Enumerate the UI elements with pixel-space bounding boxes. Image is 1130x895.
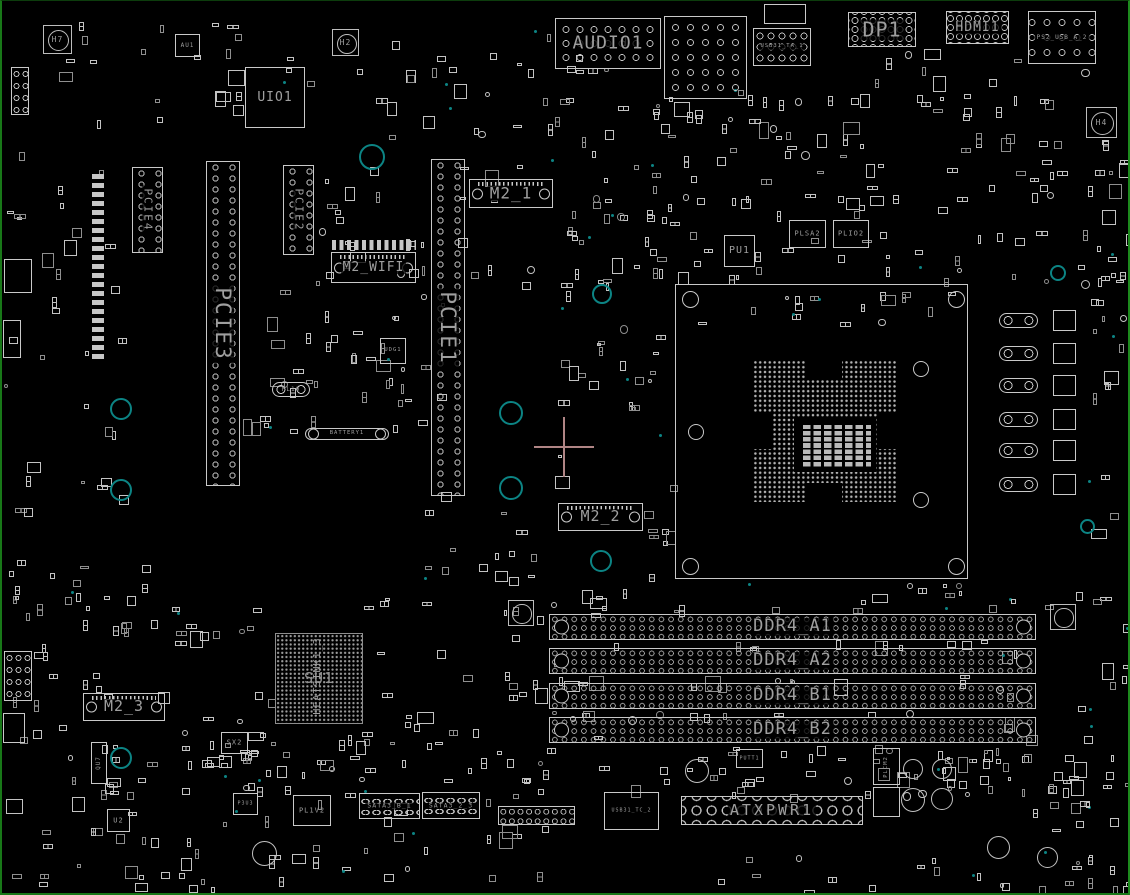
ddr4-a2-slot: DDR4_A2 — [549, 648, 1036, 674]
smd-part — [364, 606, 373, 611]
vrm-powerstage-1 — [1053, 310, 1076, 331]
smd-part — [1093, 329, 1097, 335]
plcm-chip-2 — [873, 787, 900, 817]
smd-part — [933, 76, 947, 92]
smd-part — [216, 92, 231, 102]
ddr4-a2-slot-label: DDR4_A2 — [751, 652, 834, 670]
smd-part — [947, 168, 958, 174]
left-conn-1 — [4, 259, 32, 293]
pcie3-slot-label: PCIE3 — [212, 284, 234, 363]
smd-part — [449, 107, 452, 110]
smd-part — [838, 758, 846, 762]
vrm-inductor-5 — [999, 443, 1038, 458]
smd-part — [1111, 755, 1114, 762]
smd-part — [652, 173, 661, 178]
smd-part — [1039, 886, 1046, 894]
smd-part — [917, 865, 925, 869]
smd-part — [377, 652, 386, 655]
smd-part — [996, 748, 1000, 757]
smd-part — [756, 777, 765, 782]
smd-part — [42, 644, 46, 653]
smd-part — [509, 551, 515, 557]
smd-part — [866, 164, 875, 178]
smd-part — [759, 122, 769, 139]
smd-part — [1012, 274, 1017, 280]
smd-part — [151, 620, 159, 629]
smd-part — [656, 104, 660, 108]
smd-part — [76, 593, 81, 603]
smd-part — [1126, 627, 1129, 630]
smd-part — [449, 67, 457, 74]
smd-part — [1123, 665, 1130, 669]
smd-part — [176, 631, 188, 637]
smd-part — [269, 426, 272, 429]
smd-part — [454, 84, 467, 99]
smd-part — [141, 49, 146, 55]
smd-part — [233, 105, 244, 116]
smd-part — [248, 732, 264, 741]
plio2-chip-label: PLIO2 — [836, 230, 866, 237]
smd-part — [933, 109, 943, 113]
smd-part — [1080, 801, 1089, 807]
smd-part — [223, 822, 226, 826]
smd-part — [867, 186, 879, 190]
smd-part — [287, 57, 294, 61]
smd-part — [989, 185, 995, 191]
smd-part — [313, 845, 320, 853]
smd-part — [314, 381, 318, 387]
smd-part — [331, 335, 339, 343]
smd-part — [785, 151, 791, 160]
smd-part — [634, 265, 640, 269]
smd-part — [1116, 280, 1125, 284]
smd-part — [350, 756, 359, 760]
smd-part — [512, 635, 520, 642]
smd-part — [934, 867, 940, 876]
smd-part — [513, 125, 522, 129]
smd-part — [118, 338, 128, 343]
smd-part — [382, 693, 393, 697]
smd-part — [473, 729, 478, 738]
battery1-label: BATTERY1 — [328, 431, 367, 437]
smd-part — [490, 53, 498, 60]
smd-part — [336, 217, 344, 224]
cap-7 — [252, 841, 277, 866]
smd-part — [463, 675, 473, 682]
smd-part — [509, 695, 518, 701]
qu7-chip: QU7 — [91, 742, 107, 784]
smd-part — [50, 573, 56, 579]
smd-part — [302, 772, 305, 779]
smd-part — [947, 641, 956, 647]
smd-part — [551, 602, 557, 608]
socket-center-caps — [803, 425, 871, 468]
smd-part — [932, 858, 935, 864]
smd-part — [481, 758, 487, 769]
smd-part — [495, 553, 498, 560]
smd-part — [182, 746, 190, 751]
smd-part — [292, 854, 306, 864]
smd-part — [957, 197, 968, 202]
smd-part — [878, 164, 884, 169]
vrm-inductor-2 — [999, 346, 1038, 361]
smd-part — [907, 583, 913, 589]
smd-part — [528, 69, 535, 78]
smd-part — [91, 828, 96, 837]
smd-part — [190, 631, 202, 648]
smd-part — [83, 620, 88, 631]
smd-part — [64, 240, 78, 256]
smd-part — [983, 759, 990, 768]
smd-part — [572, 211, 576, 219]
smd-part — [1039, 141, 1048, 147]
pl10-inductor-label: PL10 — [280, 386, 302, 392]
smd-part — [981, 640, 988, 644]
smd-part — [1113, 886, 1118, 895]
smd-part — [422, 266, 425, 276]
m2-3-slot-label: M2_3 — [102, 699, 146, 715]
ddr4-a1-slot: DDR4_A1 — [549, 614, 1036, 640]
smd-part — [362, 392, 367, 403]
au1-chip-label: AU1 — [179, 42, 197, 48]
smd-part — [7, 211, 14, 214]
smd-part — [524, 779, 530, 785]
smd-part — [861, 600, 866, 605]
smd-part — [319, 228, 326, 235]
smd-part — [1089, 855, 1093, 858]
smd-part — [68, 755, 74, 761]
cpu-pin-field — [753, 360, 896, 502]
smd-part — [362, 732, 373, 737]
smd-part — [561, 307, 564, 310]
smd-part — [27, 462, 41, 474]
smd-part — [558, 400, 570, 405]
smd-part — [687, 112, 693, 124]
smd-part — [271, 742, 275, 746]
smd-part — [432, 68, 436, 78]
smd-part — [139, 875, 144, 880]
smd-part — [538, 761, 543, 766]
smd-part — [26, 476, 31, 487]
smd-part — [1044, 279, 1049, 284]
smd-part — [618, 106, 629, 111]
smd-part — [326, 342, 331, 352]
smd-part — [105, 244, 115, 249]
smd-part — [756, 267, 763, 275]
smd-part — [151, 838, 159, 848]
smd-part — [366, 357, 376, 361]
qu7-chip-label: QU7 — [94, 756, 104, 770]
smd-part — [267, 317, 277, 332]
smd-part — [509, 577, 519, 586]
smd-part — [488, 265, 492, 276]
smd-part — [961, 148, 972, 153]
smd-part — [345, 793, 356, 798]
smd-part — [471, 272, 479, 279]
plsa2-chip: PLSA2 — [789, 220, 826, 248]
left-padcol — [92, 174, 104, 359]
smd-part — [1095, 170, 1105, 176]
smd-part — [1105, 383, 1109, 390]
ddr4-a1-slot-label: DDR4_A1 — [751, 618, 834, 636]
smd-part — [327, 204, 338, 209]
smd-part — [886, 58, 891, 69]
usb31-ta-cage — [764, 4, 806, 24]
smd-part — [111, 286, 120, 294]
smd-part — [1119, 344, 1124, 354]
vrm-powerstage-5 — [1053, 440, 1076, 461]
battery1: BATTERY1 — [305, 428, 389, 440]
p3u3-chip-label: P3U3 — [235, 801, 255, 806]
teal-ring-5 — [499, 476, 523, 500]
m2-wifi-padrow — [332, 240, 416, 250]
smd-part — [1090, 725, 1093, 728]
usb-stack-connector — [664, 16, 747, 99]
smd-part — [528, 575, 535, 579]
smd-part — [977, 873, 981, 881]
smd-part — [516, 530, 528, 535]
smd-part — [418, 420, 428, 426]
cpu-socket — [675, 284, 968, 579]
smd-part — [1110, 866, 1115, 875]
mounting-hole-h2: H2 — [332, 29, 359, 56]
mounting-hole-h2-label: H2 — [338, 38, 354, 46]
smd-part — [49, 674, 58, 679]
smd-part — [1119, 163, 1130, 179]
smd-part — [1103, 141, 1108, 151]
smd-part — [423, 116, 435, 129]
ddr4-b1-slot: DDR4_B1 — [549, 683, 1036, 709]
smd-part — [684, 156, 689, 168]
smd-part — [854, 211, 860, 219]
smd-part — [19, 152, 25, 161]
smd-part — [401, 384, 405, 394]
smd-part — [1093, 599, 1102, 605]
smd-part — [1081, 280, 1090, 289]
smd-part — [915, 250, 923, 255]
smd-part — [1047, 192, 1054, 199]
plio2-chip: PLIO2 — [833, 220, 869, 248]
smd-part — [1076, 821, 1084, 828]
smd-part — [617, 213, 624, 220]
smd-part — [755, 252, 761, 262]
smd-part — [142, 837, 146, 845]
smd-part — [697, 198, 705, 205]
smd-part — [704, 249, 713, 253]
smd-part — [479, 564, 489, 572]
smd-part — [870, 196, 884, 205]
smd-part — [1078, 706, 1086, 712]
smd-part — [943, 584, 947, 587]
smd-part — [843, 122, 860, 135]
smd-part — [838, 255, 845, 264]
smd-part — [73, 580, 81, 587]
smd-part — [72, 228, 81, 238]
smd-part — [668, 204, 672, 212]
smd-part — [728, 117, 733, 122]
smd-part — [398, 400, 403, 407]
smd-part — [653, 268, 658, 279]
smd-part — [547, 34, 551, 42]
teal-ring-6 — [592, 284, 612, 304]
smd-part — [1089, 708, 1092, 711]
smd-part — [37, 604, 43, 616]
smd-part — [421, 365, 431, 369]
smd-part — [567, 231, 576, 236]
smd-part — [405, 722, 411, 728]
smd-part — [387, 102, 398, 116]
smd-part — [1102, 316, 1105, 322]
smd-part — [1112, 335, 1115, 338]
smd-part — [313, 857, 318, 868]
vrm-powerstage-3 — [1053, 375, 1076, 396]
smd-part — [1097, 246, 1101, 252]
smd-part — [1011, 599, 1016, 604]
smd-part — [402, 760, 406, 767]
smd-part — [604, 214, 610, 224]
smd-part — [599, 347, 603, 356]
smd-part — [58, 186, 63, 196]
pcie1-slot: PCIE1 — [431, 159, 465, 496]
smd-part — [1003, 763, 1009, 772]
smd-part — [12, 874, 22, 879]
smd-part — [487, 835, 491, 845]
smd-part — [26, 613, 30, 621]
smd-part — [786, 132, 791, 140]
smd-part — [277, 766, 288, 778]
usb31-tc-2-connector-label: USB31_TC_2 — [609, 808, 653, 813]
smd-part — [805, 194, 816, 198]
smd-part — [226, 49, 231, 59]
cap-3 — [932, 759, 952, 779]
smd-part — [425, 566, 432, 569]
smd-part — [219, 755, 223, 760]
smd-part — [195, 849, 199, 860]
smd-part — [623, 589, 627, 599]
smd-part — [279, 877, 283, 888]
smd-part — [958, 757, 968, 772]
smd-part — [651, 164, 654, 167]
smd-part — [160, 25, 165, 33]
smd-part — [668, 135, 675, 138]
smd-part — [6, 799, 23, 815]
smd-part — [851, 98, 859, 105]
smd-part — [578, 373, 587, 378]
smd-part — [189, 885, 199, 893]
smd-part — [335, 210, 340, 215]
smd-part — [201, 879, 205, 884]
smd-part — [645, 237, 649, 247]
smd-part — [320, 760, 334, 771]
smd-part — [34, 700, 39, 712]
smd-part — [113, 626, 119, 636]
smd-part — [972, 759, 977, 763]
usb31-ta-1-connector-label: USB31_TA_1 — [758, 44, 805, 50]
smd-part — [749, 119, 761, 124]
smd-part — [634, 165, 639, 170]
smd-part — [657, 257, 667, 263]
mounting-hole-mid — [508, 600, 534, 626]
smd-part — [182, 730, 188, 736]
smd-part — [203, 717, 214, 721]
smd-part — [1045, 100, 1054, 110]
teal-ring-9 — [1050, 265, 1066, 281]
smd-part — [468, 768, 472, 774]
smd-part — [1016, 171, 1025, 176]
smd-part — [840, 155, 847, 158]
smd-part — [124, 628, 129, 637]
smd-part — [648, 529, 658, 533]
smd-part — [422, 602, 432, 606]
smd-part — [603, 279, 611, 283]
smd-part — [414, 724, 421, 733]
smd-part — [1065, 755, 1074, 762]
smd-part — [736, 275, 739, 279]
smd-part — [1008, 777, 1011, 782]
teal-ring-8 — [110, 747, 132, 769]
smd-part — [988, 786, 992, 794]
smd-part — [24, 508, 34, 516]
smd-part — [105, 427, 113, 436]
smd-part — [65, 597, 73, 605]
origin-crosshair — [534, 417, 594, 477]
pcie4-slot-label: PCIE4 — [142, 185, 154, 234]
smd-part — [504, 610, 507, 617]
heatsink1-3-label-label: HEATSINK1_3 — [311, 637, 326, 714]
smd-part — [1098, 278, 1102, 287]
smd-part — [104, 596, 110, 600]
smd-part — [1122, 676, 1127, 684]
smd-part — [592, 151, 596, 158]
dp1-connector-label: DP1 — [860, 19, 903, 40]
smd-part — [1049, 784, 1054, 793]
smd-part — [844, 777, 852, 785]
smd-part — [1032, 193, 1038, 203]
smd-part — [427, 743, 432, 749]
sata3-2-3-connector-label: SATA3_2_3 — [427, 802, 475, 809]
pu1-chip: PU1 — [724, 235, 755, 267]
smd-part — [1100, 597, 1112, 601]
sx2-chip: SX2 — [221, 732, 248, 754]
smd-part — [228, 70, 245, 86]
smd-part — [236, 92, 242, 101]
smd-part — [485, 92, 490, 97]
smd-part — [1022, 789, 1026, 797]
uio1-chip-label: UIO1 — [255, 91, 294, 105]
mounting-hole-h7: H7 — [43, 25, 72, 54]
smd-part — [478, 131, 486, 139]
smd-part — [252, 422, 261, 435]
smd-part — [186, 624, 197, 628]
smd-part — [593, 202, 602, 209]
atxpwr1-connector-label: ATXPWR1 — [728, 803, 816, 819]
smd-part — [52, 297, 57, 308]
smd-part — [965, 792, 970, 797]
smd-part — [660, 767, 669, 775]
vrm-powerstage-6 — [1053, 474, 1076, 495]
smd-part — [662, 217, 667, 224]
ps2-usb-a-2-connector-label: PS2_USB_A_2 — [1035, 34, 1090, 40]
smd-part — [919, 266, 922, 269]
smd-part — [1052, 829, 1061, 832]
cap-5 — [987, 836, 1010, 859]
teal-ring-2 — [110, 398, 132, 420]
vrm-inductor-6 — [999, 477, 1038, 492]
mounting-hole-h7-label: H7 — [50, 35, 66, 43]
ddr4-b1-slot-label: DDR4_B1 — [751, 687, 834, 705]
smd-part — [325, 311, 329, 323]
smd-part — [1106, 772, 1114, 780]
